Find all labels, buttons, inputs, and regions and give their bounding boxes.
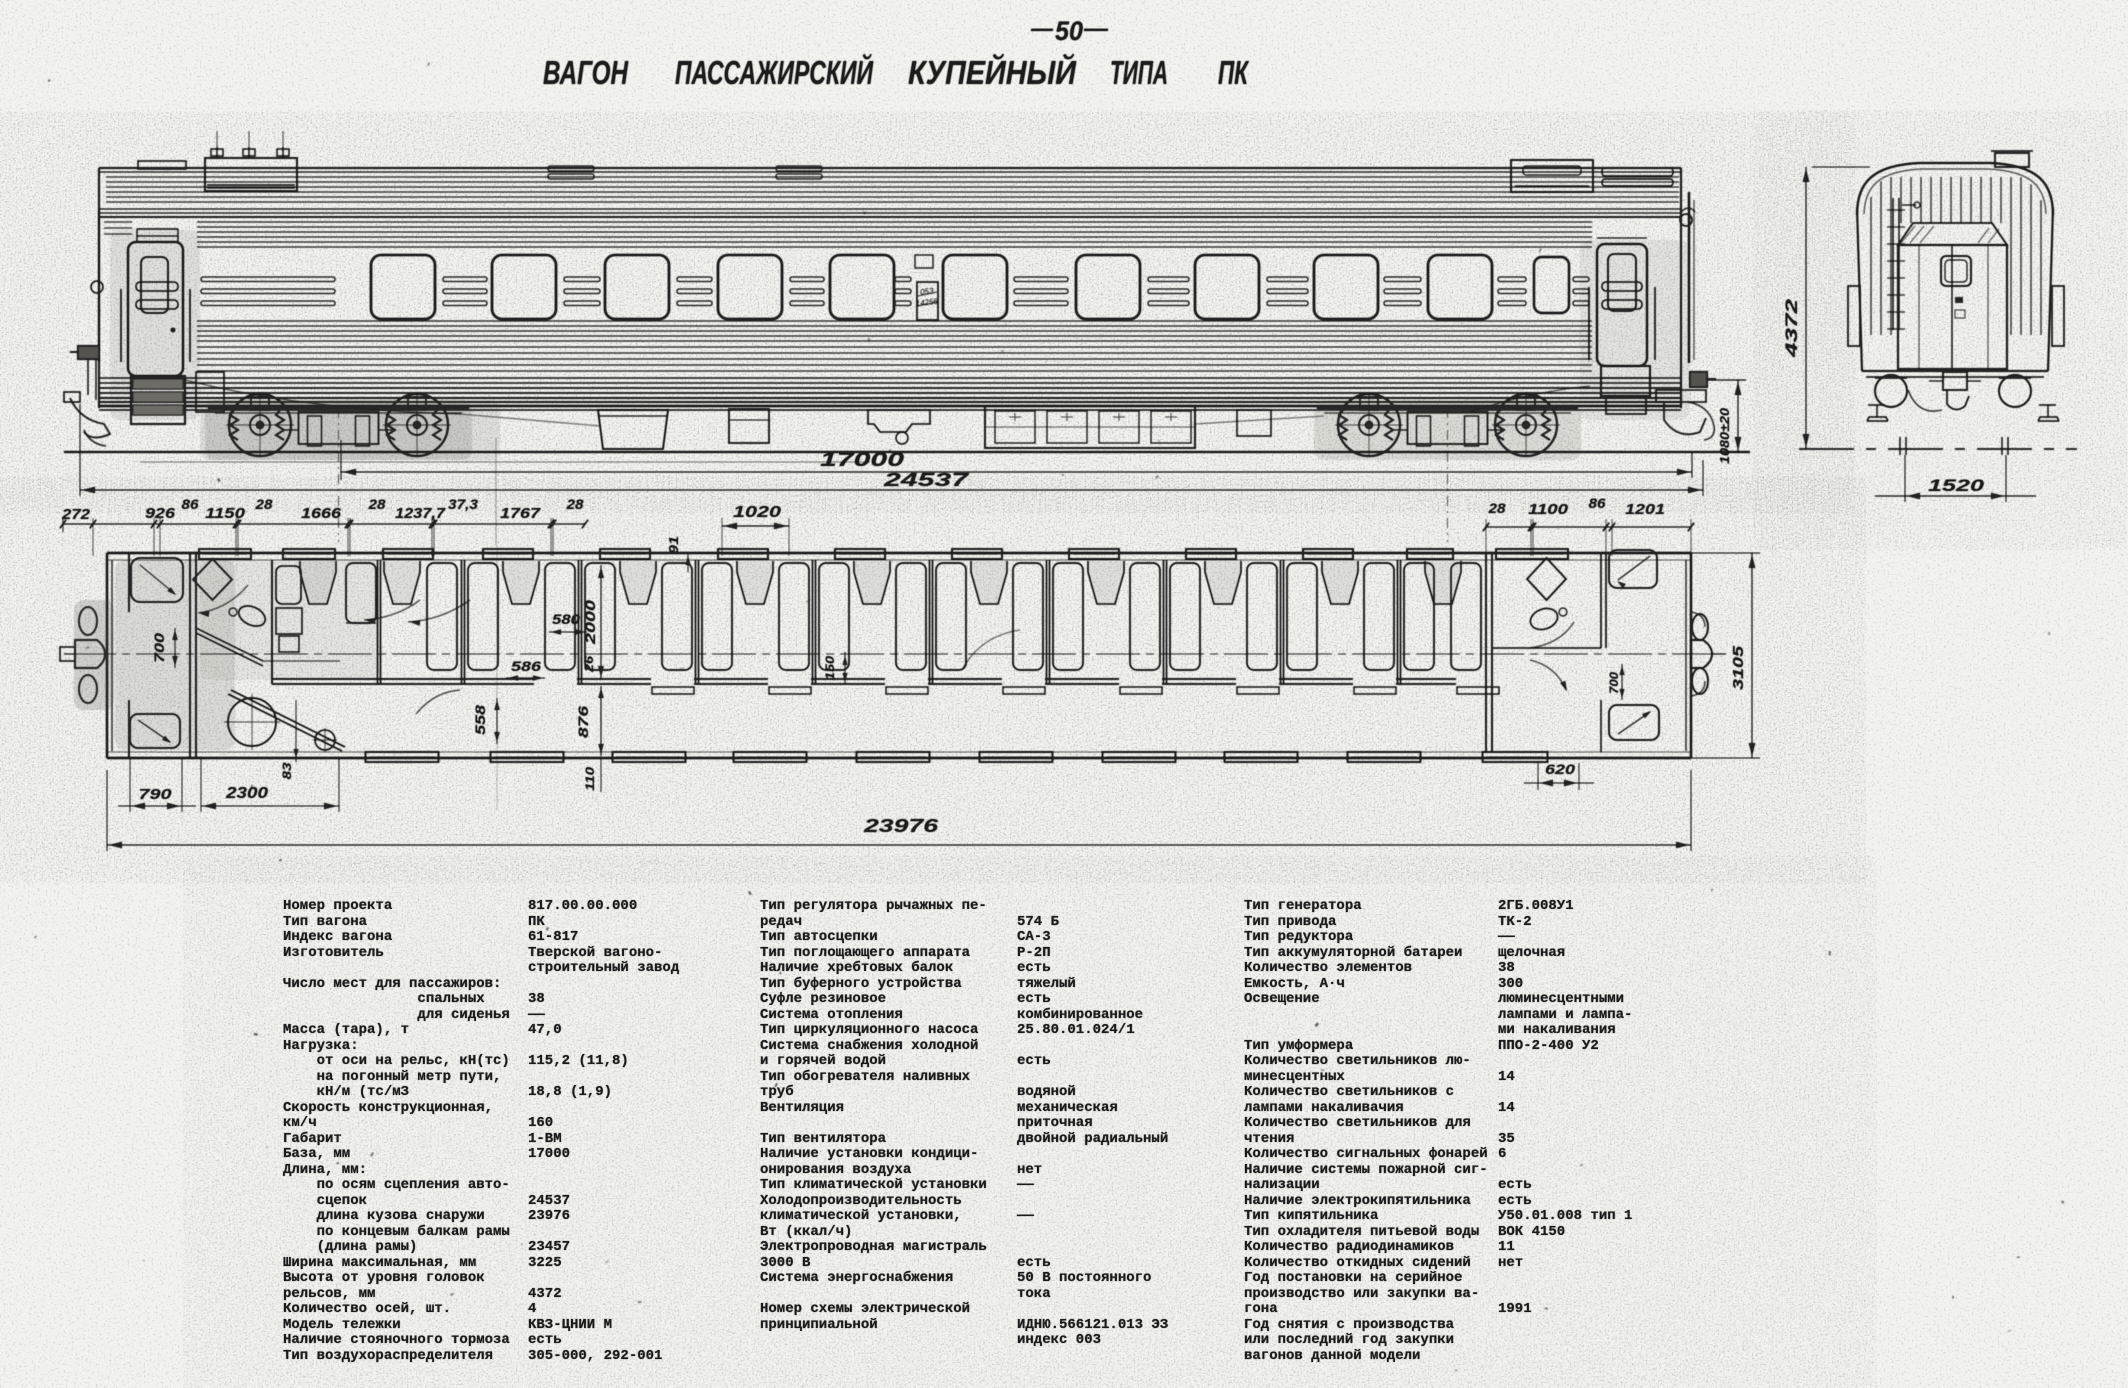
svg-text:586: 586 <box>511 658 541 674</box>
svg-text:28: 28 <box>565 496 583 512</box>
svg-text:28: 28 <box>367 496 385 512</box>
svg-text:053: 053 <box>920 286 935 296</box>
svg-text:26: 26 <box>582 656 596 674</box>
svg-text:1080±20: 1080±20 <box>1717 407 1732 464</box>
svg-text:580: 580 <box>552 611 580 627</box>
svg-text:ПК: ПК <box>1218 54 1250 91</box>
svg-text:876: 876 <box>575 706 591 738</box>
svg-text:23976: 23976 <box>863 816 940 836</box>
svg-text:24537: 24537 <box>882 470 969 490</box>
svg-text:—: — <box>1030 16 1054 41</box>
svg-text:ПАССАЖИРСКИЙ: ПАССАЖИРСКИЙ <box>675 53 874 91</box>
svg-text:2000: 2000 <box>582 600 598 646</box>
svg-text:620: 620 <box>1545 761 1575 777</box>
svg-text:110: 110 <box>583 767 597 791</box>
svg-text:28: 28 <box>1487 500 1505 516</box>
svg-text:91: 91 <box>666 536 681 554</box>
svg-text:1020: 1020 <box>733 504 781 521</box>
svg-text:1201: 1201 <box>1625 501 1665 518</box>
svg-text:37,3: 37,3 <box>448 496 478 512</box>
svg-text:86: 86 <box>1589 495 1606 511</box>
svg-text:150: 150 <box>823 656 837 680</box>
svg-text:50: 50 <box>1055 16 1083 46</box>
svg-text:700: 700 <box>1607 672 1621 694</box>
svg-text:3105: 3105 <box>1730 645 1747 690</box>
svg-text:2300: 2300 <box>225 785 268 802</box>
svg-text:1666: 1666 <box>301 505 342 522</box>
svg-text:700: 700 <box>151 633 167 663</box>
svg-text:790: 790 <box>139 786 173 803</box>
svg-text:272: 272 <box>61 506 91 523</box>
svg-text:1520: 1520 <box>1928 476 1985 495</box>
svg-text:—: — <box>1083 16 1109 41</box>
svg-text:1767: 1767 <box>500 505 541 522</box>
svg-text:83: 83 <box>280 762 294 779</box>
svg-text:1100: 1100 <box>1528 501 1569 518</box>
svg-text:86: 86 <box>182 496 199 512</box>
svg-text:ВАГОН: ВАГОН <box>543 54 629 91</box>
svg-text:558: 558 <box>472 705 488 735</box>
svg-text:28: 28 <box>254 496 272 512</box>
svg-text:4372: 4372 <box>1782 298 1801 358</box>
svg-text:КУПЕЙНЫЙ: КУПЕЙНЫЙ <box>908 53 1077 91</box>
svg-text:926: 926 <box>145 505 176 522</box>
svg-text:1237,7: 1237,7 <box>395 505 446 522</box>
svg-text:ТИПА: ТИПА <box>1110 54 1168 91</box>
svg-text:1150: 1150 <box>205 505 246 522</box>
